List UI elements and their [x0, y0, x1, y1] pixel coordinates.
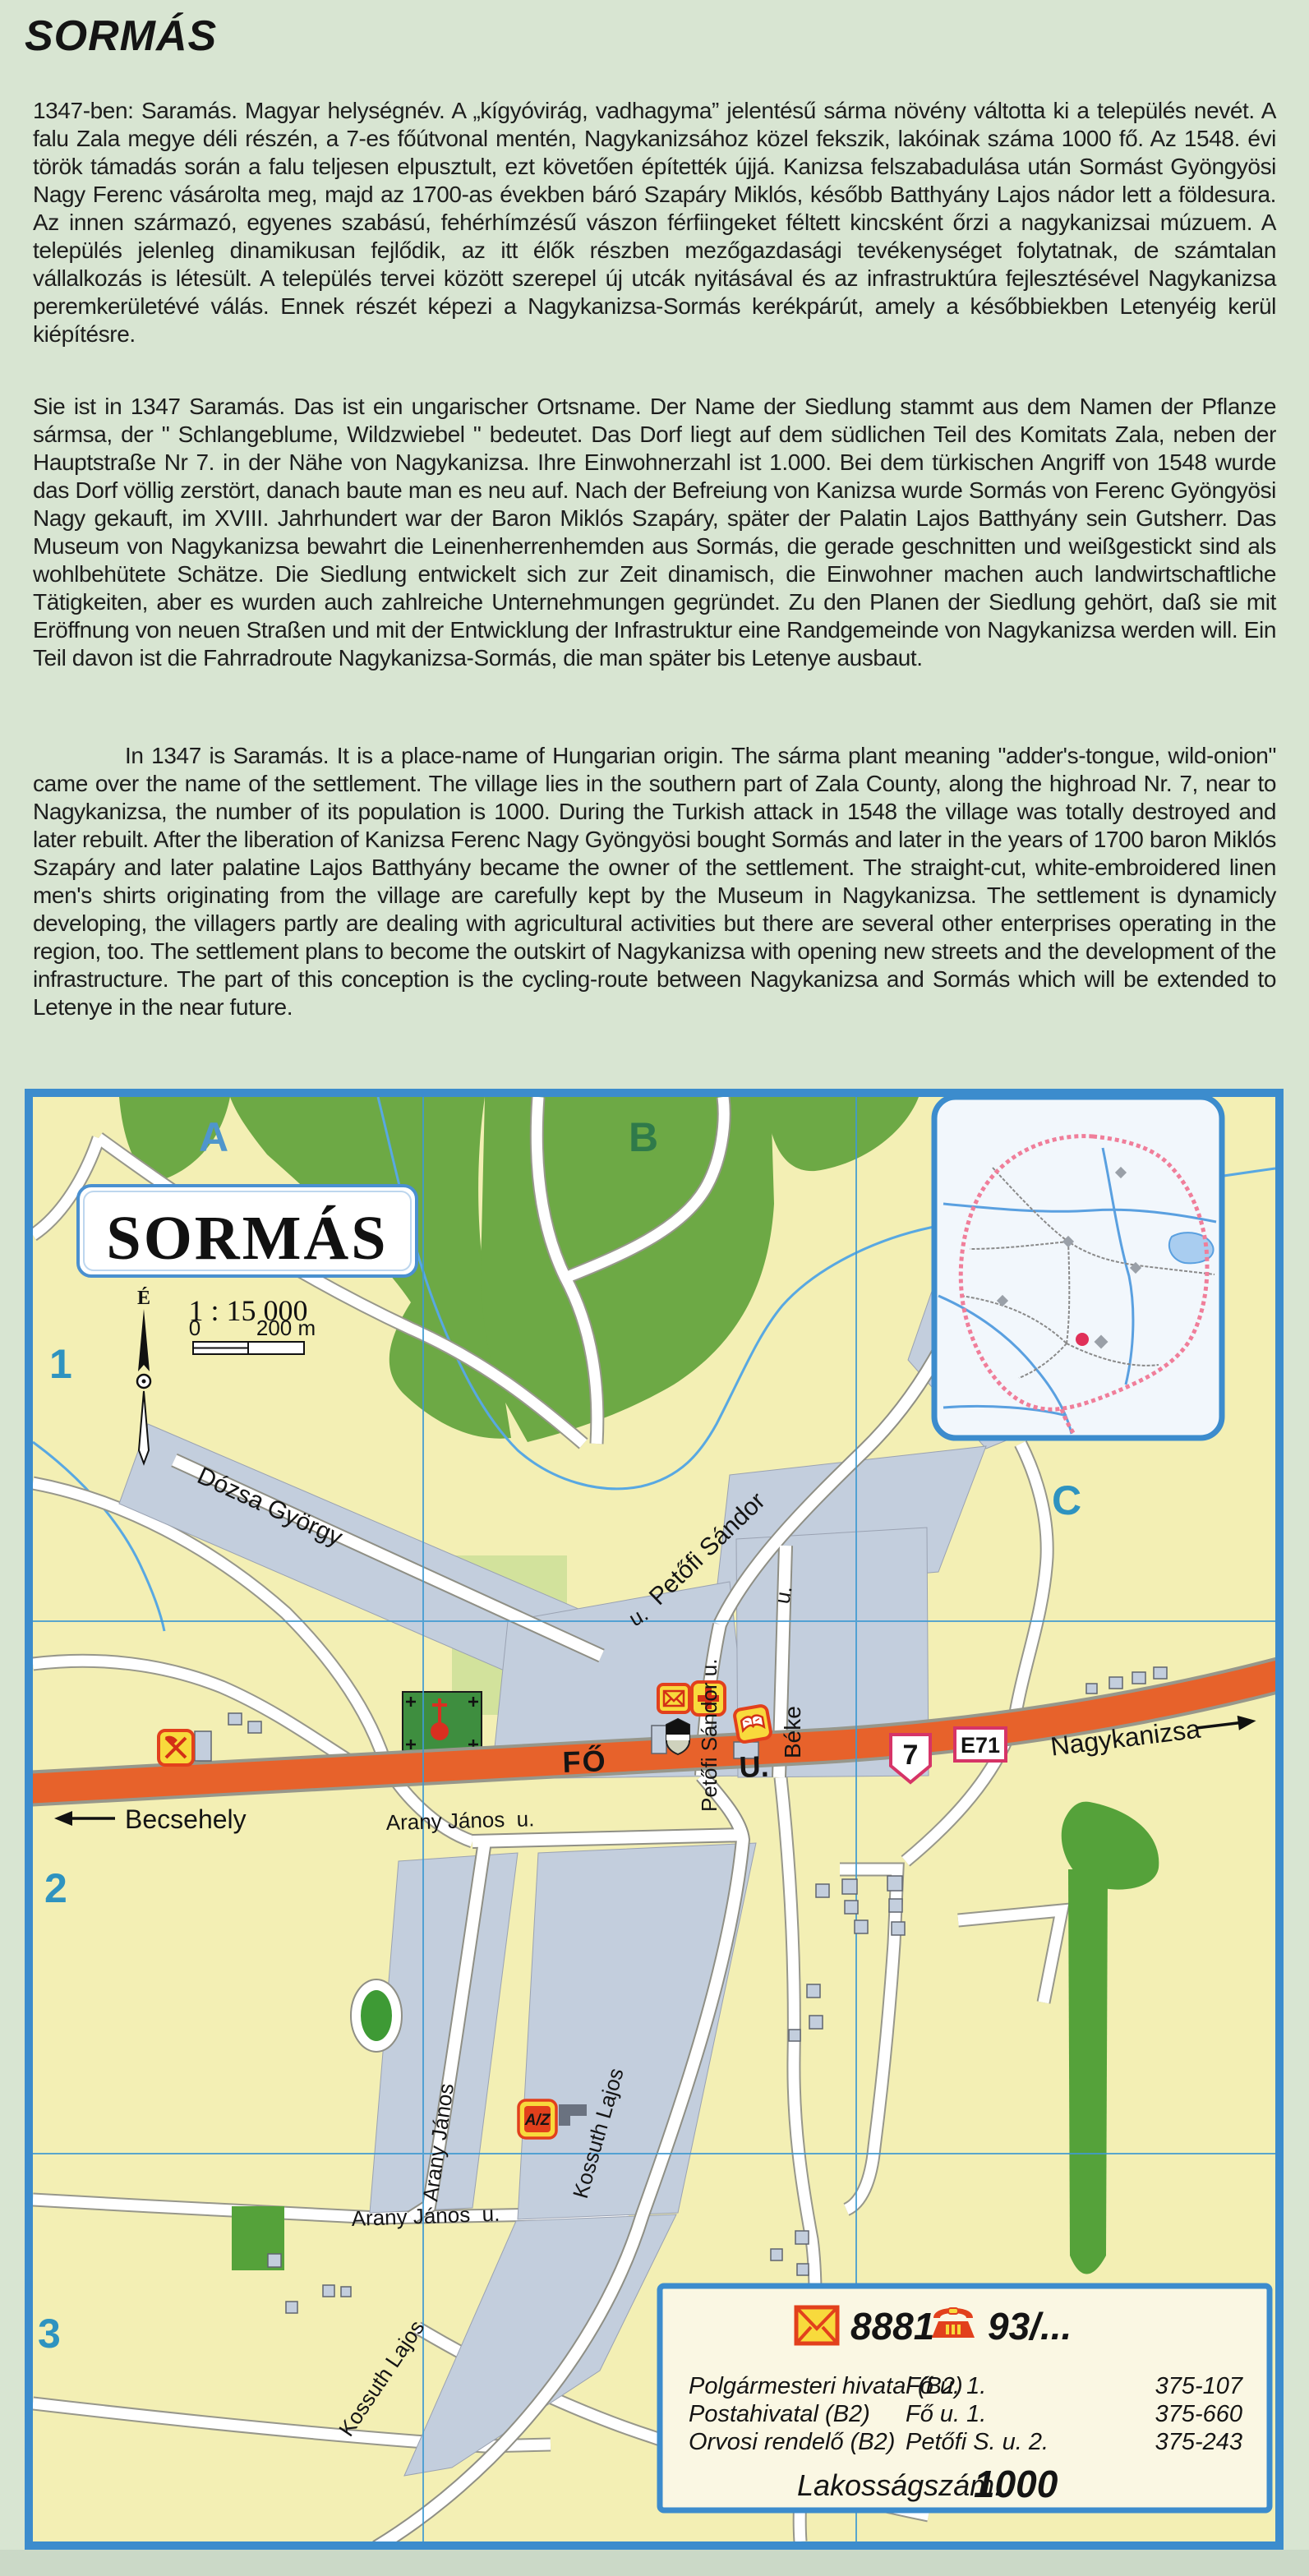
route-7-number: 7: [903, 1740, 919, 1771]
label-petofi-sandor-vertical: Petőfi Sándor u.: [697, 1659, 721, 1812]
paragraph-hungarian: 1347-ben: Saramás. Magyar helységnév. A …: [33, 97, 1276, 348]
grid-col-c: C: [1052, 1477, 1081, 1523]
info-row-address: Fő u. 1.: [906, 2401, 986, 2427]
population-label: Lakosságszám:: [797, 2468, 1002, 2502]
grid-row-1: 1: [49, 1341, 72, 1387]
info-row-phone: 375-660: [1155, 2401, 1242, 2427]
page-title: SORMÁS: [25, 12, 217, 61]
label-fo-u: U.: [739, 1749, 769, 1784]
info-row-name: Postahivatal (B2): [689, 2401, 870, 2427]
info-box: 8881 93/... Polgármesteri hivatal (B2) F…: [660, 2286, 1270, 2510]
becsehely-label: Becsehely: [125, 1804, 247, 1834]
label-fo: FŐ: [562, 1743, 607, 1779]
compass-north-label: É: [137, 1288, 150, 1309]
postal-envelope-icon: [796, 2307, 837, 2343]
label-arany-janos-top: Arany János u.: [385, 1806, 534, 1835]
page-bottom-margin: [0, 2550, 1309, 2576]
info-row-phone: 375-243: [1155, 2429, 1242, 2455]
paragraph-english: In 1347 is Saramás. It is a place-name o…: [33, 742, 1276, 1021]
az-label: A/Z: [524, 2112, 551, 2129]
town-hall-az-icon: A/Z: [519, 2100, 556, 2138]
map-title: SORMÁS: [106, 1204, 388, 1273]
grid-row-2: 2: [44, 1865, 67, 1911]
town-map: A/Z Dózsa György u. Petőfi Sándor Petőfi…: [25, 1089, 1284, 2550]
green-strip: [1068, 1869, 1108, 2274]
label-arany-janos-bottom: Arany János u.: [351, 2201, 500, 2231]
label-beke: Béke: [780, 1706, 805, 1758]
library-book-icon: [734, 1705, 772, 1743]
scale-zero: 0: [189, 1316, 200, 1340]
info-rows: Polgármesteri hivatal (B2) Fő u. 1. 375-…: [689, 2373, 1244, 2455]
population-value: 1000: [974, 2463, 1058, 2505]
e71-number: E71: [961, 1733, 1000, 1758]
phone-icon: [932, 2308, 975, 2338]
post-office-icon: [658, 1684, 689, 1712]
postal-code: 8881: [850, 2305, 934, 2348]
grid-col-a: A: [199, 1114, 228, 1160]
scale-bar: [193, 1342, 304, 1354]
inset-county-map: [934, 1097, 1222, 1438]
phone-prefix: 93/...: [988, 2305, 1072, 2348]
map-title-box: SORMÁS: [78, 1186, 417, 1276]
info-row-name: Orvosi rendelő (B2): [689, 2429, 895, 2455]
grid-col-b: B: [629, 1114, 658, 1160]
church-icon: [666, 1719, 689, 1754]
restaurant-icon: [159, 1730, 193, 1765]
scale-end: 200 m: [256, 1316, 316, 1340]
sports-field: [351, 1979, 402, 2052]
info-row-address: Petőfi S. u. 2.: [906, 2429, 1049, 2455]
info-row-phone: 375-107: [1155, 2373, 1244, 2399]
scale-indicator: 1 : 15 000 0 200 m: [188, 1294, 316, 1354]
grid-row-3: 3: [38, 2311, 61, 2357]
paragraph-german: Sie ist in 1347 Saramás. Das ist ein ung…: [33, 393, 1276, 672]
e71-sign: E71: [955, 1728, 1006, 1761]
inset-sormas-dot: [1076, 1333, 1089, 1346]
cemetery: [403, 1692, 482, 1751]
street-arany-janos-top: [472, 1835, 746, 1841]
info-row-address: Fő u. 1.: [906, 2373, 986, 2399]
